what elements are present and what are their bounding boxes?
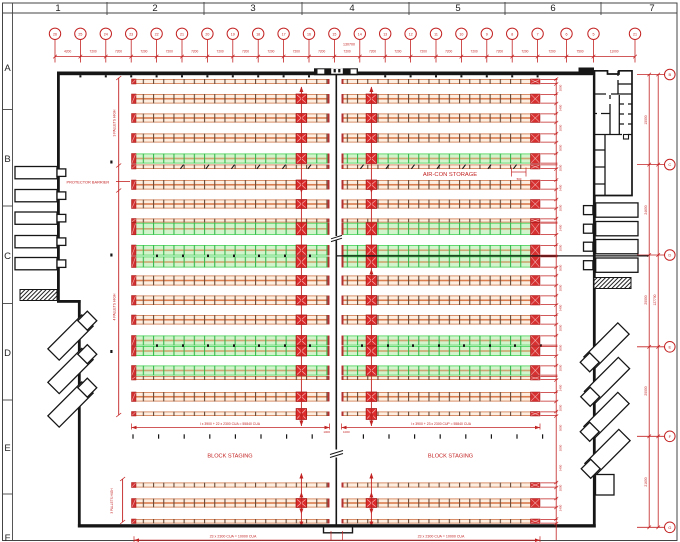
svg-text:A: A [4,63,11,74]
svg-text:2000: 2000 [559,124,563,131]
svg-text:18: 18 [256,32,260,36]
svg-text:l x 3900 + 23 x 2300 CUP = 558: l x 3900 + 23 x 2300 CUP = 55840 CUA [411,422,472,426]
svg-text:4200: 4200 [64,50,71,54]
svg-text:1000: 1000 [343,430,350,434]
svg-text:7: 7 [649,3,654,14]
svg-text:13: 13 [383,32,387,36]
svg-text:2000: 2000 [559,284,563,291]
svg-text:l x 3900 + 22 x 2300 CUA = 558: l x 3900 + 22 x 2300 CUA = 55840 CUA [200,422,261,426]
svg-text:2000: 2000 [559,204,563,211]
svg-text:1000: 1000 [323,430,330,434]
svg-text:20000: 20000 [644,386,648,395]
svg-text:10: 10 [459,32,463,36]
svg-text:7200: 7200 [369,50,376,54]
svg-text:PROTECTOR BARRIER: PROTECTOR BARRIER [67,179,110,184]
svg-text:2000: 2000 [559,324,563,331]
svg-text:11000: 11000 [610,50,619,54]
svg-text:7200: 7200 [90,50,97,54]
svg-text:2000: 2000 [559,404,563,411]
svg-text:7200: 7200 [217,50,224,54]
svg-text:3400: 3400 [559,464,563,471]
svg-text:D: D [4,348,11,359]
svg-text:22: 22 [155,32,159,36]
svg-text:C: C [4,251,11,262]
svg-text:3: 3 [250,3,255,14]
svg-text:11: 11 [434,32,438,36]
svg-text:E: E [4,443,10,454]
svg-text:7200: 7200 [115,50,122,54]
svg-text:D: D [668,253,671,258]
svg-text:2400: 2400 [559,504,563,511]
svg-text:21: 21 [633,32,637,36]
svg-text:7500: 7500 [576,50,583,54]
svg-text:15000: 15000 [644,115,648,124]
svg-text:2: 2 [152,3,157,14]
svg-text:2000: 2000 [559,444,563,451]
svg-text:7200: 7200 [318,50,325,54]
svg-text:7200: 7200 [420,50,427,54]
svg-text:3 PALLETS HIGH: 3 PALLETS HIGH [113,109,117,136]
svg-text:2000: 2000 [559,84,563,91]
svg-text:9: 9 [486,32,488,36]
svg-text:20: 20 [205,32,209,36]
svg-text:3000: 3000 [559,424,563,431]
svg-text:2000: 2000 [559,244,563,251]
svg-text:130700: 130700 [343,43,355,47]
svg-text:7200: 7200 [191,50,198,54]
svg-text:16: 16 [307,32,311,36]
svg-text:3 PALLETS HIGH: 3 PALLETS HIGH [110,488,114,514]
svg-text:7200: 7200 [344,50,351,54]
svg-text:5: 5 [593,32,595,36]
svg-text:17: 17 [282,32,286,36]
svg-text:24: 24 [104,32,108,36]
svg-text:2400: 2400 [559,224,563,231]
svg-text:7200: 7200 [394,50,401,54]
svg-text:7200: 7200 [242,50,249,54]
svg-text:6: 6 [550,3,555,14]
svg-text:3000: 3000 [559,144,563,151]
svg-text:7200: 7200 [140,50,147,54]
svg-text:127700: 127700 [653,294,657,305]
svg-text:23 x 2300 CUA = 10000 CUA: 23 x 2300 CUA = 10000 CUA [210,535,257,539]
svg-text:7200: 7200 [445,50,452,54]
svg-text:23 x 2300 CUA = 10000 CUA: 23 x 2300 CUA = 10000 CUA [418,535,465,539]
svg-text:7200: 7200 [496,50,503,54]
svg-text:3000: 3000 [559,264,563,271]
svg-text:7: 7 [537,32,539,36]
svg-text:24600: 24600 [644,205,648,214]
svg-text:3000: 3000 [559,344,563,351]
svg-text:1: 1 [55,3,60,14]
svg-text:21600: 21600 [644,477,648,486]
svg-text:20000: 20000 [644,295,648,304]
svg-text:6: 6 [566,32,568,36]
svg-text:500: 500 [517,177,522,181]
svg-text:3400: 3400 [559,104,563,111]
svg-text:2000: 2000 [559,364,563,371]
svg-text:4 PALLETS HIGH: 4 PALLETS HIGH [113,293,117,320]
svg-text:C: C [668,162,671,167]
svg-text:BLOCK STAGING: BLOCK STAGING [428,454,473,460]
svg-text:B: B [4,154,10,165]
svg-text:7200: 7200 [548,50,555,54]
svg-text:7200: 7200 [166,50,173,54]
svg-text:AIR-CON STORAGE: AIR-CON STORAGE [423,172,477,178]
svg-text:7200: 7200 [521,50,528,54]
svg-text:19: 19 [231,32,235,36]
svg-text:B: B [668,72,671,77]
svg-text:7200: 7200 [267,50,274,54]
svg-text:G: G [668,525,671,530]
svg-text:26: 26 [53,32,57,36]
svg-text:2400: 2400 [559,384,563,391]
svg-text:BLOCK STAGING: BLOCK STAGING [207,454,252,460]
svg-text:14: 14 [358,32,362,36]
svg-text:21: 21 [180,32,184,36]
svg-text:8: 8 [511,32,513,36]
svg-text:12: 12 [409,32,413,36]
svg-text:25: 25 [78,32,82,36]
svg-text:2000: 2000 [559,164,563,171]
svg-text:3400: 3400 [559,184,563,191]
svg-text:3400: 3400 [559,304,563,311]
svg-text:5: 5 [455,3,460,14]
svg-text:7200: 7200 [293,50,300,54]
svg-text:23: 23 [129,32,133,36]
svg-text:7200: 7200 [471,50,478,54]
svg-text:F: F [5,533,11,542]
svg-text:E: E [668,344,671,349]
svg-text:2000: 2000 [559,484,563,491]
svg-text:4: 4 [349,3,354,14]
svg-text:15: 15 [332,32,336,36]
